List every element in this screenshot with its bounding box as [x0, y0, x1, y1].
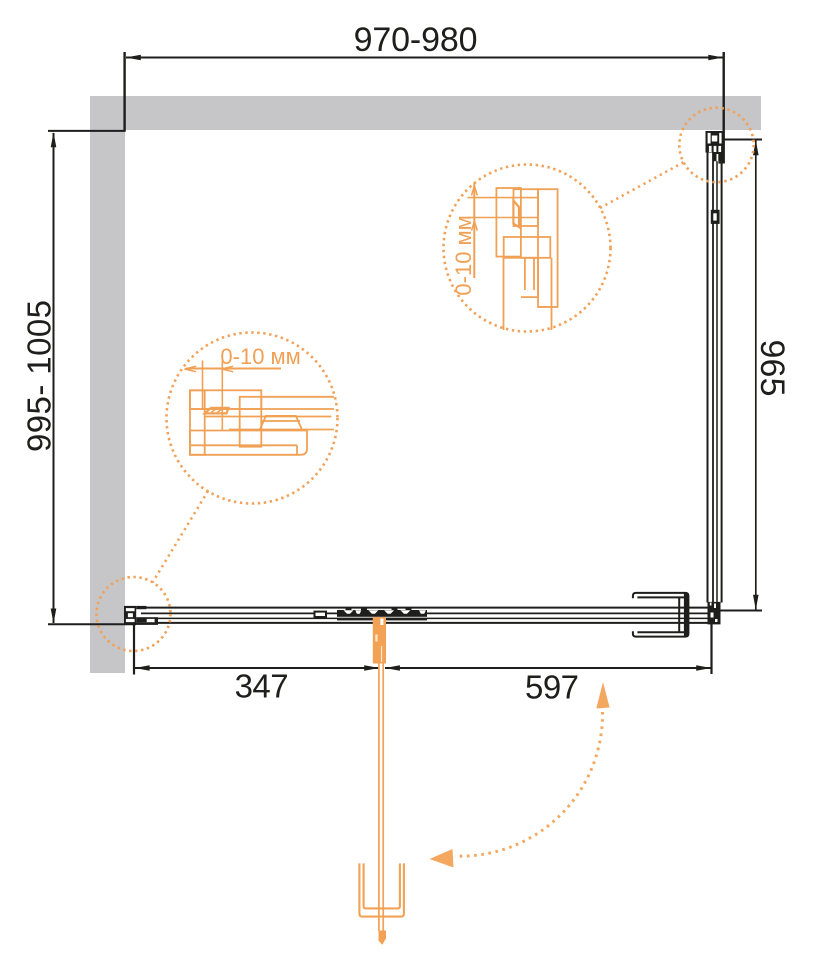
svg-text:965: 965: [753, 340, 791, 397]
svg-text:597: 597: [525, 669, 579, 706]
svg-text:995- 1005: 995- 1005: [20, 300, 57, 452]
svg-text:347: 347: [235, 668, 289, 705]
svg-text:0-10 мм: 0-10 мм: [451, 215, 476, 295]
svg-text:0-10 мм: 0-10 мм: [220, 344, 300, 369]
svg-text:970-980: 970-980: [354, 21, 478, 59]
